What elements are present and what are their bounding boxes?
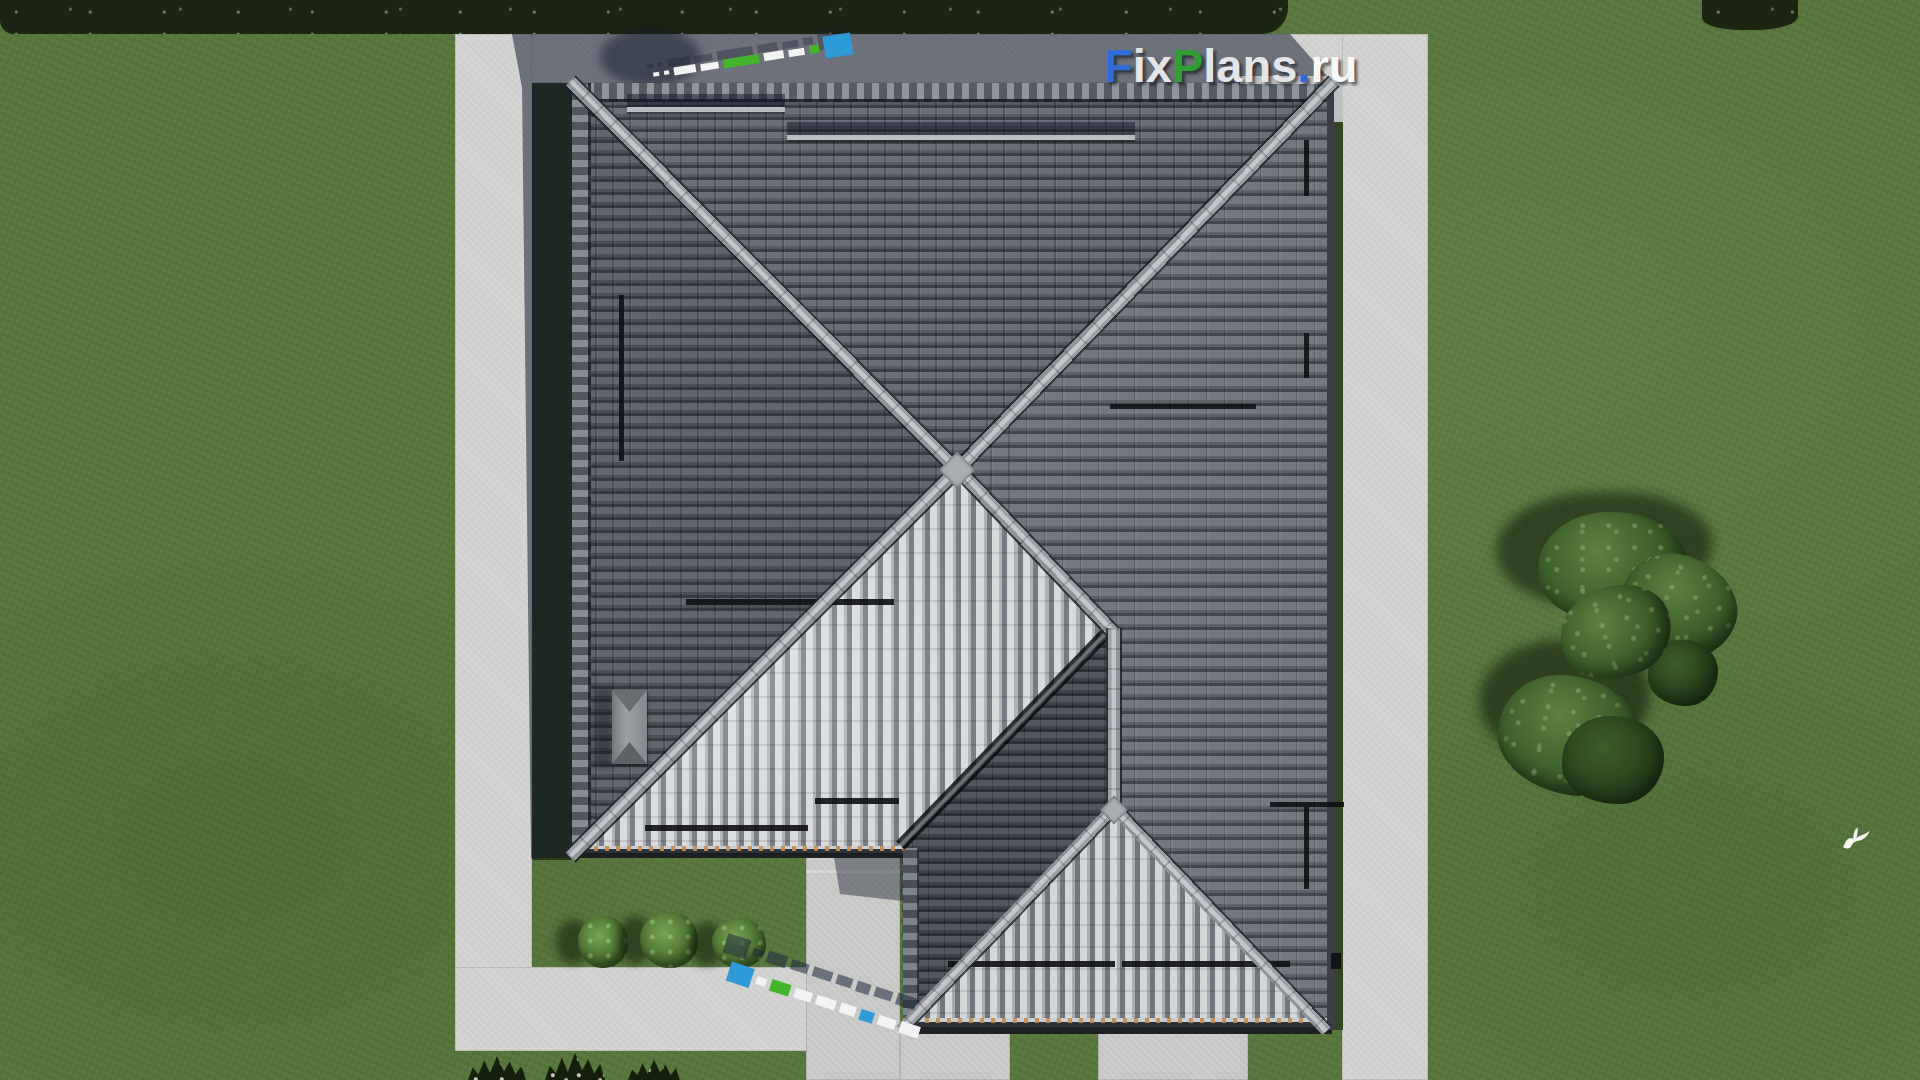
chimney-cap-bevel-top [612,690,647,712]
watermark-block [898,1021,921,1039]
path-left [455,34,532,1051]
chimney-shadow [594,688,612,768]
eave-right [1327,83,1335,1030]
watermark-block [653,72,660,77]
chimney-cap-bevel-bottom [612,742,647,764]
watermark-block [755,976,767,987]
roof-bar-wing-east-v [1304,807,1309,889]
snowguard-north-b [787,135,1135,140]
eave-wing-west [903,848,919,1030]
watermark-block [877,1015,897,1030]
watermark-block [700,61,719,71]
watermark-block [858,1009,875,1024]
logo-part: P [1172,39,1203,92]
eave-wing-south [903,1018,1332,1034]
bush [712,918,766,968]
watermark-block [822,32,853,58]
walkway-right [1098,1030,1248,1080]
site-logo-watermark: FixPlans.ru [1104,42,1357,89]
watermark-block [815,995,837,1011]
tree [1562,716,1664,804]
watermark-block [673,64,696,75]
snowguard-north-a [627,107,785,112]
ridge-vertical [1106,628,1122,816]
grass-strip-right [1335,117,1343,1030]
roof-bar-east-v1 [1304,140,1309,196]
tree-canopy-top-right [1702,0,1798,30]
logo-part: ru [1310,39,1357,92]
clay-tile-dots [572,846,903,851]
watermark-block [793,988,813,1003]
watermark-block [809,44,820,53]
path-right [1342,34,1428,1080]
logo-part: lans [1203,39,1297,92]
watermark-block [788,47,805,56]
eave-south [572,846,903,858]
watermark-block [839,1002,857,1016]
roof-bar-west-v [619,295,624,461]
snowguard-shadow [787,122,1135,135]
aerial-render: FixPlans.ru [0,0,1920,1080]
logo-part: ix [1133,39,1172,92]
chimney [612,690,647,764]
roof-bar-south-mid [815,798,899,804]
clay-tile-dots [903,1018,1332,1023]
logo-part: F [1104,39,1133,92]
eave-left [572,83,591,857]
watermark-block [763,50,784,61]
roof-bar-south-lower [645,825,808,831]
watermark-block [664,70,670,75]
roof-bar-east [1110,404,1256,409]
logo-part: . [1297,39,1310,92]
roof-bar-east-v2 [1304,333,1309,378]
watermark-block [723,54,760,69]
gutter-drop [1331,953,1341,969]
roof-bar-south-upper [686,599,894,605]
watermark-block [769,979,792,997]
snowguard-shadow [627,94,785,107]
